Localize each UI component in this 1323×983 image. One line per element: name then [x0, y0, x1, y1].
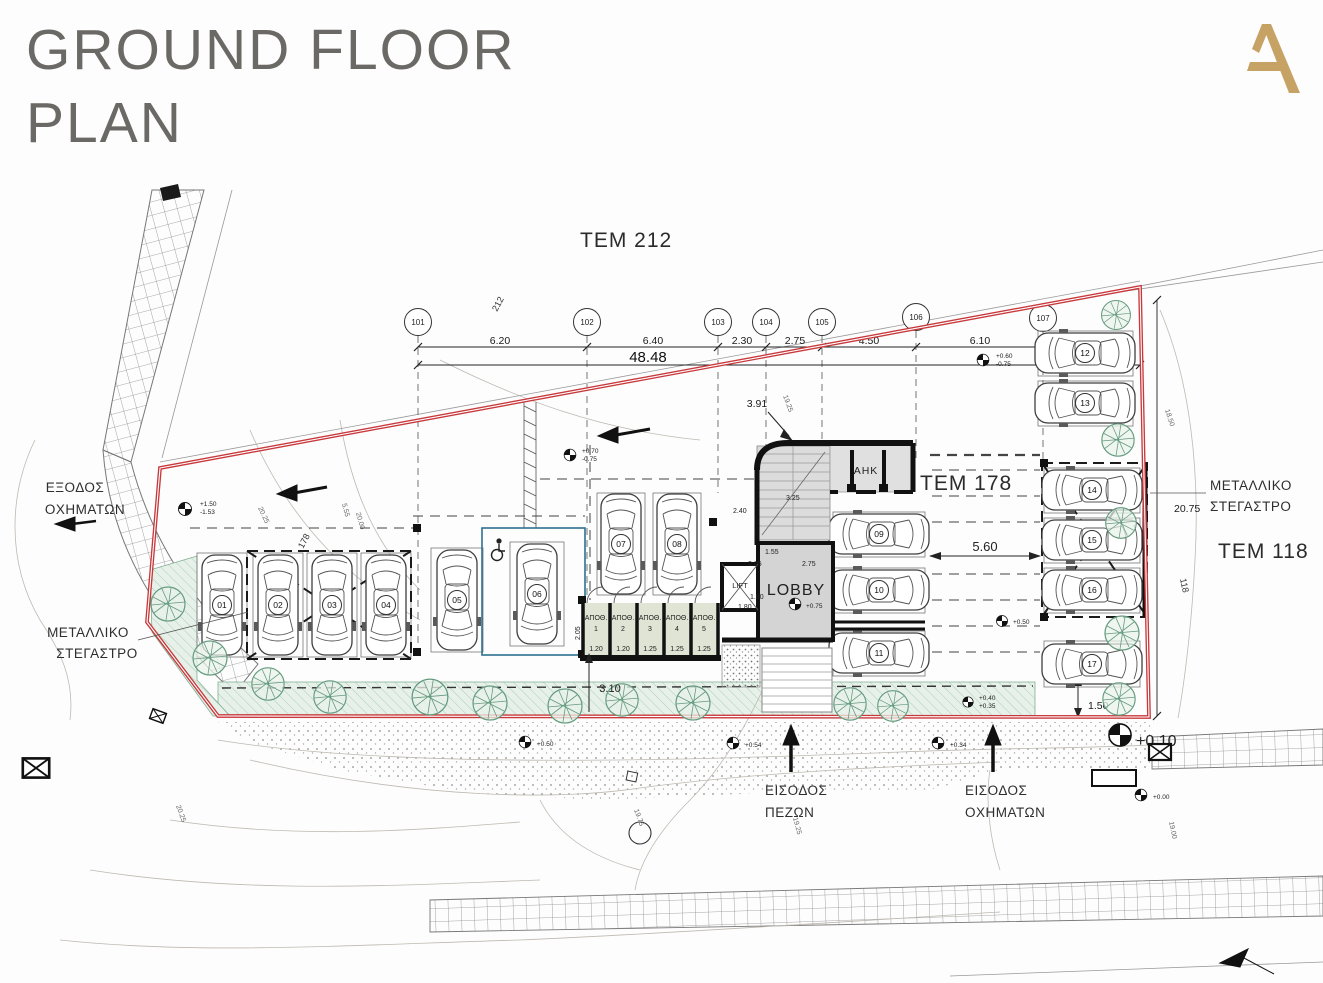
level-value: +0.50: [1013, 619, 1030, 626]
axis-label-212: 212: [490, 295, 506, 313]
vehicle-exit-label-2: ΟΧΗΜΑΤΩΝ: [45, 502, 125, 517]
manhole-icon: [1149, 744, 1171, 760]
dim-lift-w: 1.80: [750, 594, 764, 601]
survey-lines: [160, 250, 1323, 462]
store-width: 1.25: [670, 646, 684, 653]
vehicle-exit-label-1: ΕΞΟΔΟΣ: [46, 480, 105, 495]
vehicle-entrance-label-2: ΟΧΗΜΑΤΩΝ: [965, 805, 1045, 820]
dim-seg3: 2.30: [732, 335, 753, 347]
store-number: 3: [648, 626, 652, 633]
contour-label: 5.55: [340, 503, 350, 518]
level-value: -0.75: [582, 456, 597, 463]
exit-arrow-icon: [55, 517, 96, 531]
pedestrian-entrance-label-1: ΕΙΣΟΔΟΣ: [765, 783, 827, 798]
grid-bubble-104: 104: [759, 318, 773, 327]
parking-number: 16: [1087, 585, 1097, 595]
grid-bubble-102: 102: [580, 318, 594, 327]
level-value: +0.40: [979, 695, 996, 702]
store-number: 4: [675, 626, 679, 633]
dim-aisle-width: 5.60: [972, 539, 997, 554]
store-number: 1: [594, 626, 598, 633]
store-label: ΑΠΟΘ.: [612, 615, 635, 622]
level-value: +0.75: [806, 603, 823, 610]
logo-a-icon: [1247, 24, 1300, 93]
dim-lobby-in: 1.55: [765, 549, 779, 556]
parking-number: 04: [381, 600, 391, 610]
level-value: +0.70: [582, 448, 599, 455]
parking-number: 01: [217, 600, 227, 610]
level-marker-icon: [932, 737, 944, 749]
ahk-label: ΑΗΚ: [854, 465, 879, 477]
manhole-icon: [23, 758, 49, 777]
dim-total: 48.48: [629, 349, 667, 366]
dim-seg1: 6.20: [490, 335, 511, 347]
level-value: +0.00: [1153, 794, 1170, 801]
dim-right-total: 20.75: [1174, 503, 1200, 515]
level-marker-icon: [963, 697, 973, 707]
parking-number: 17: [1087, 659, 1097, 669]
level-marker-icon: [727, 737, 739, 749]
wheelchair-icon: [492, 538, 506, 560]
north-arrow-icon: [1220, 949, 1274, 974]
parking-number: 13: [1080, 398, 1090, 408]
level-value: +0.50: [537, 741, 554, 748]
contour-label: 19.00: [1167, 821, 1178, 840]
level-marker-icon: [977, 354, 989, 366]
dim-lobby-w: 2.05: [748, 561, 762, 568]
store-label: ΑΠΟΘ.: [693, 615, 716, 622]
contour-label: 20.25: [256, 506, 270, 525]
canopy-right-label-1: ΜΕΤΑΛΛΙΚΟ: [1210, 478, 1292, 493]
parking-number: 06: [532, 589, 542, 599]
axis-label-178: 178: [296, 532, 312, 550]
drive-arrow-icon: [277, 485, 327, 501]
level-marker-icon: [996, 615, 1007, 626]
parking-number: 05: [452, 595, 462, 605]
dim-seg4: 2.75: [785, 335, 806, 347]
canopy-left-label-1: ΜΕΤΑΛΛΙΚΟ: [47, 625, 129, 640]
store-depth: 2.05: [575, 626, 582, 640]
dim-stair-len: 3.25: [786, 495, 800, 502]
storage-rooms: ΑΠΟΘ. ΑΠΟΘ. ΑΠΟΘ. ΑΠΟΘ. ΑΠΟΘ. 1 2 3 4 5 …: [575, 587, 721, 658]
canopy-right-label-2: ΣΤΕΓΑΣΤΡΟ: [1210, 499, 1291, 514]
axis-label-118: 118: [1178, 577, 1191, 593]
drive-arrow-icon: [598, 427, 650, 443]
parking-number: 10: [874, 585, 884, 595]
dim-stair-width: 2.40: [733, 508, 747, 515]
floor-plan-drawing: 101 102 103 104 105 106 107 212 178 118 …: [0, 0, 1323, 983]
store-width: 1.25: [643, 646, 657, 653]
parking-number: 15: [1087, 535, 1097, 545]
level-marker-icon: [789, 598, 801, 610]
parking-number: 08: [672, 539, 682, 549]
retaining-wall-band: [524, 402, 536, 528]
lobby-label: LOBBY: [767, 582, 825, 599]
bench-icon: [1092, 770, 1136, 786]
grid-bubble-106: 106: [909, 313, 923, 322]
level-marker-icon: [1109, 724, 1131, 746]
dim-lift-d: 1.80: [738, 604, 752, 611]
store-label: ΑΠΟΘ.: [666, 615, 689, 622]
store-number: 2: [621, 626, 625, 633]
level-value: -1.53: [200, 509, 215, 516]
level-value: +0.60: [996, 353, 1013, 360]
parking-number: 09: [874, 529, 884, 539]
dim-lobby-l: 2.75: [802, 561, 816, 568]
plot-label-tem178: TEM 178: [920, 472, 1012, 495]
pedestrian-entrance-label-2: ΠΕΖΩΝ: [765, 805, 814, 820]
level-value: +1.50: [200, 501, 217, 508]
level-value: +0.34: [950, 742, 967, 749]
lift-label: LIFT: [732, 581, 748, 590]
level-marker-icon: [179, 503, 192, 516]
contour-label: 20.25: [174, 804, 187, 823]
grid-bubble-107: 107: [1036, 314, 1050, 323]
parking-number: 11: [875, 648, 884, 658]
store-width: 1.20: [616, 646, 630, 653]
dim-seg6: 6.10: [970, 335, 991, 347]
canopy-left-label-2: ΣΤΕΓΑΣΤΡΟ: [56, 646, 137, 661]
level-marker-icon: [519, 736, 531, 748]
level-value: -0.75: [996, 361, 1011, 368]
plot-label-tem118: TEM 118: [1218, 540, 1309, 563]
contour-label: 19.25: [781, 394, 794, 413]
parking-number: 07: [616, 539, 626, 549]
dim-strip: 3.10: [599, 683, 620, 695]
grid-bubble-105: 105: [815, 318, 829, 327]
contour-label: 20.00: [354, 512, 365, 531]
drawing-sheet: GROUND FLOOR PLAN: [0, 0, 1323, 983]
parking-number: 03: [327, 600, 337, 610]
plot-label-tem212: TEM 212: [580, 229, 672, 252]
parking-number: 02: [273, 600, 283, 610]
parking-number: 12: [1080, 348, 1090, 358]
store-label: ΑΠΟΘ.: [639, 615, 662, 622]
level-marker-icon: [1135, 789, 1147, 801]
level-value: +0.35: [979, 703, 996, 710]
store-label: ΑΠΟΘ.: [585, 615, 608, 622]
store-number: 5: [702, 626, 706, 633]
dim-offset: 3.91: [747, 398, 768, 410]
grid-bubble-101: 101: [411, 318, 425, 327]
level-marker-icon: [564, 449, 576, 461]
manhole-icon: [150, 709, 167, 724]
parking-number: 14: [1087, 485, 1097, 495]
store-width: 1.25: [697, 646, 711, 653]
level-value: +0.54: [745, 742, 762, 749]
grid-bubble-103: 103: [711, 318, 725, 327]
vehicle-entrance-label-1: ΕΙΣΟΔΟΣ: [965, 783, 1027, 798]
store-width: 1.20: [589, 646, 603, 653]
dim-seg2: 6.40: [643, 335, 664, 347]
dim-right-diag: 18.50: [1163, 408, 1175, 427]
